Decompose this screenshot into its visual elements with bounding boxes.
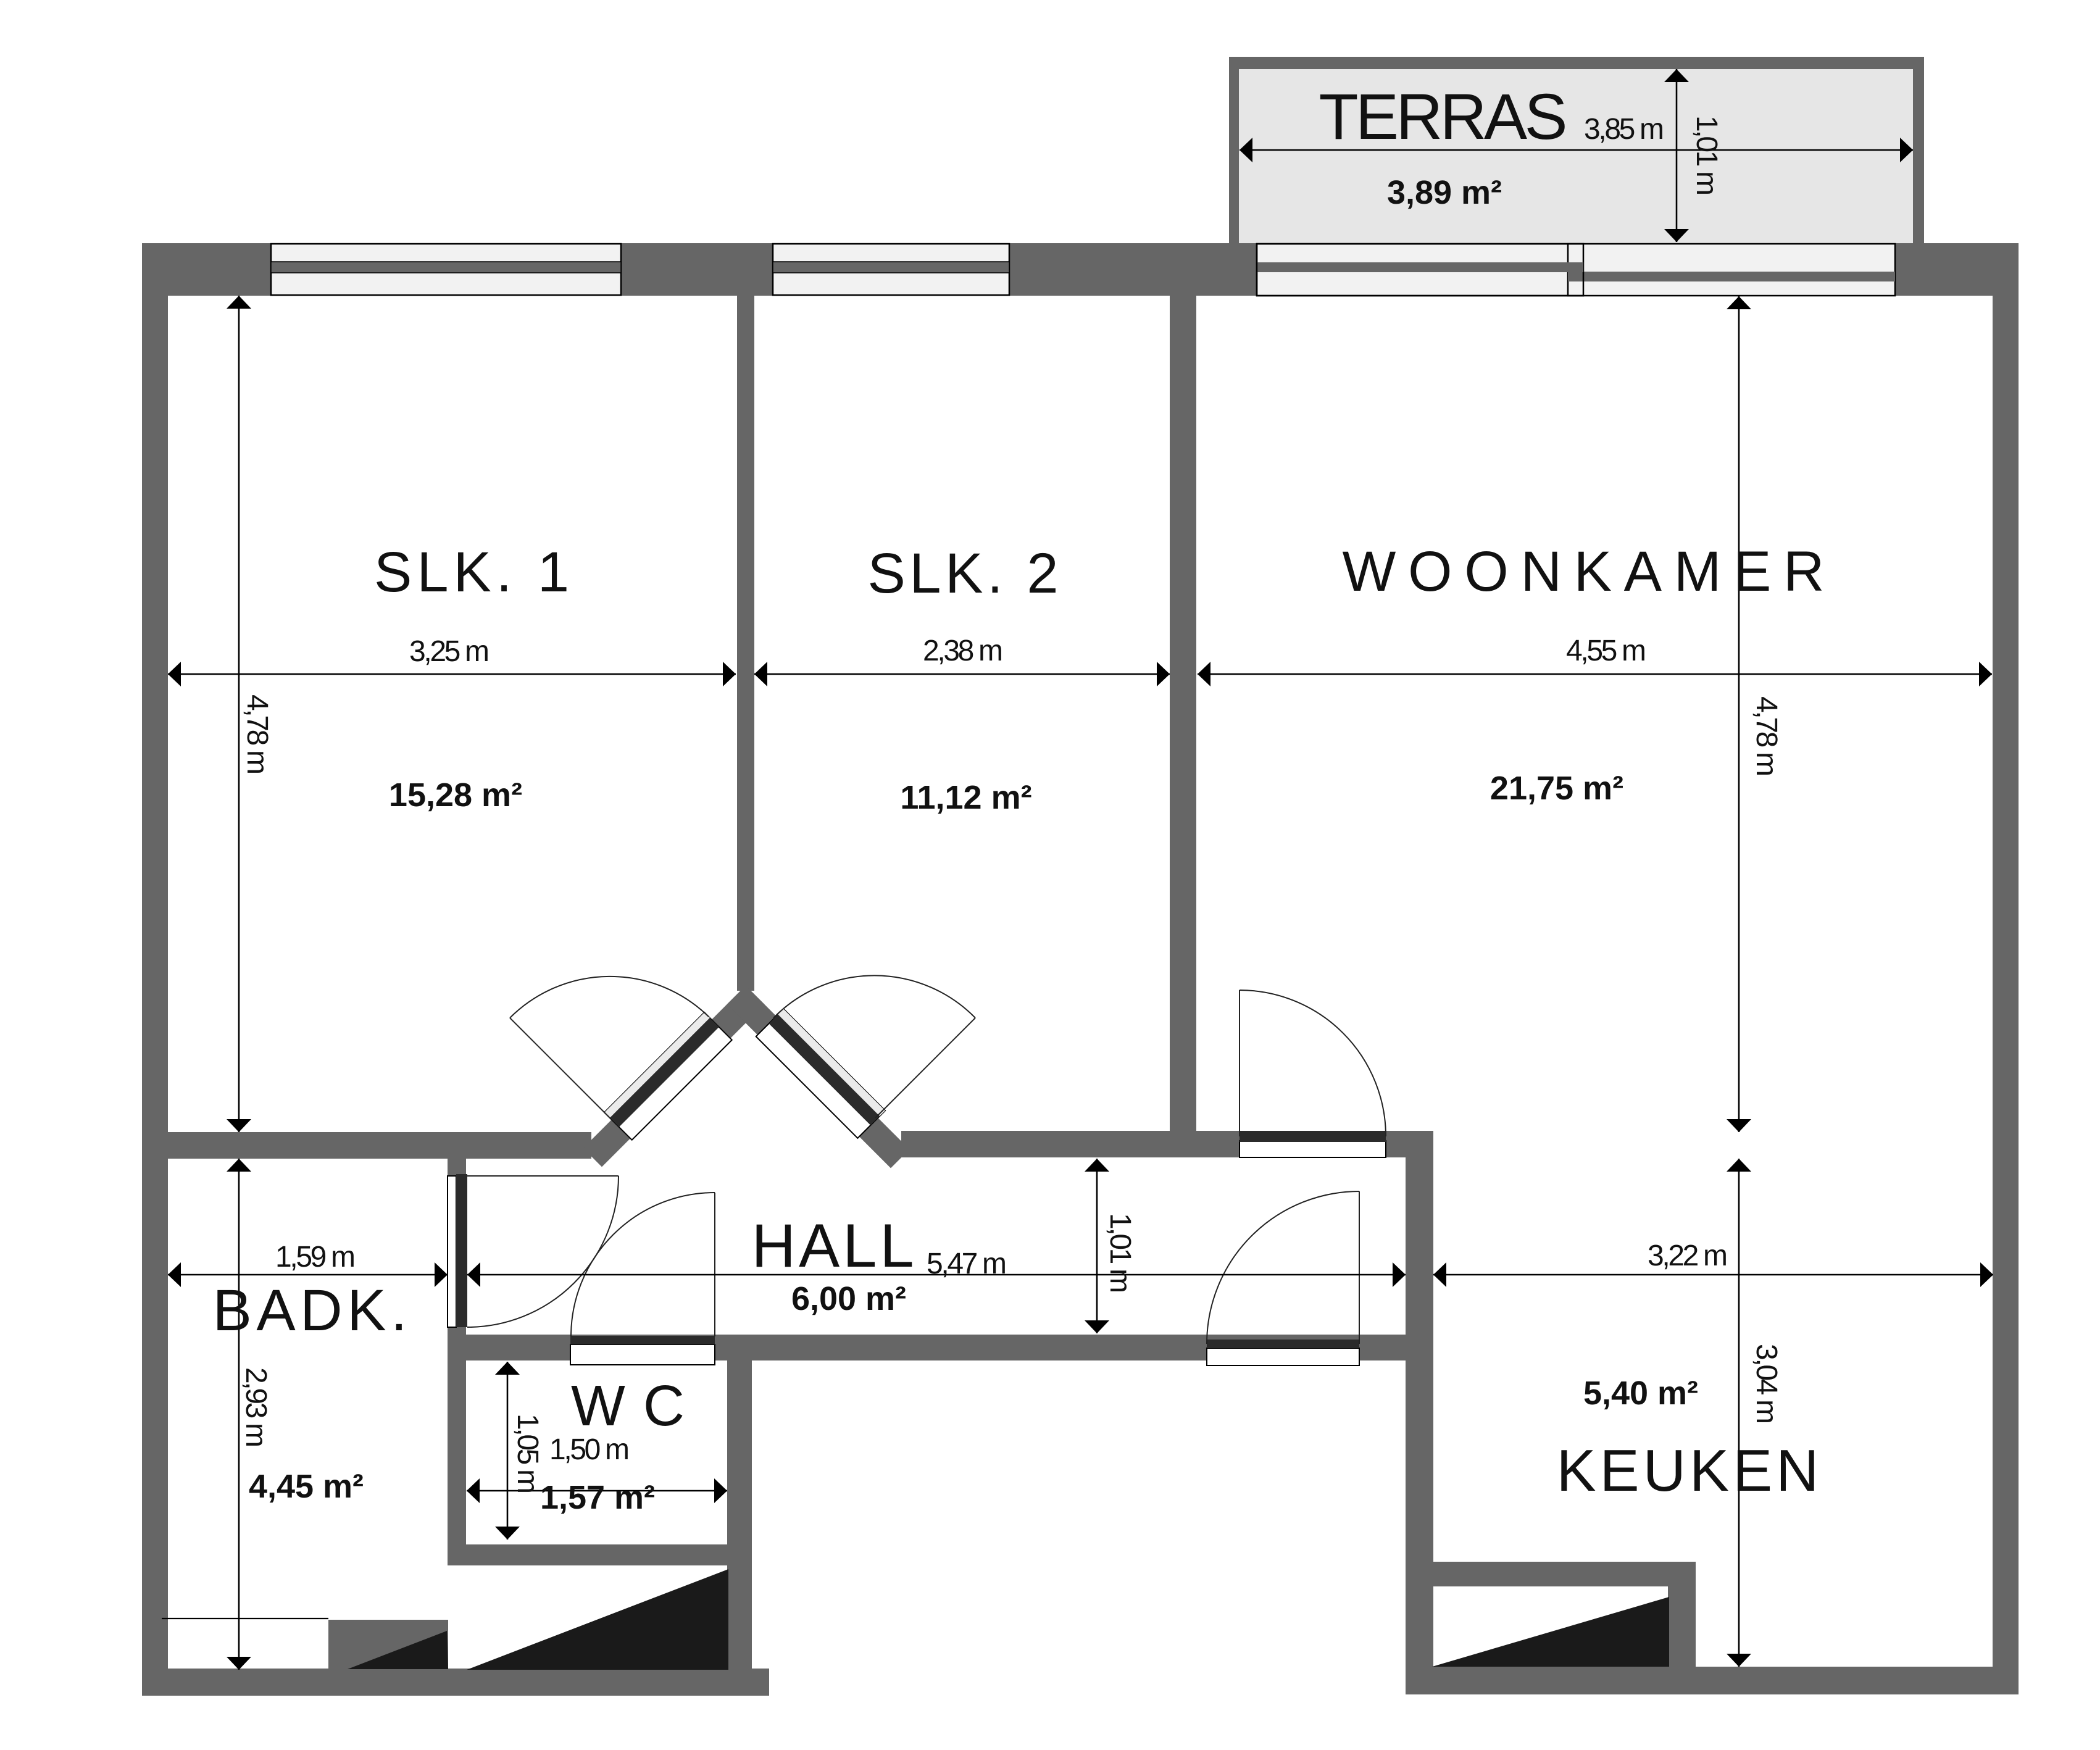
svg-text:3,89 m²: 3,89 m²	[1387, 174, 1502, 211]
svg-text:4,45 m²: 4,45 m²	[249, 1468, 364, 1505]
svg-text:1,01 m: 1,01 m	[1690, 115, 1723, 196]
svg-text:WOONKAMER: WOONKAMER	[1343, 540, 1825, 603]
svg-text:5,40 m²: 5,40 m²	[1583, 1375, 1698, 1412]
svg-text:1,57 m²: 1,57 m²	[540, 1479, 655, 1516]
svg-text:5,47 m: 5,47 m	[927, 1248, 1007, 1280]
svg-text:3,22 m: 3,22 m	[1648, 1240, 1728, 1272]
svg-text:3,25 m: 3,25 m	[409, 635, 490, 668]
svg-text:4,78 m: 4,78 m	[1750, 696, 1783, 777]
svg-text:1,50 m: 1,50 m	[549, 1433, 630, 1466]
svg-text:SLK. 2: SLK. 2	[868, 542, 1059, 605]
svg-text:3,85 m: 3,85 m	[1584, 113, 1664, 146]
svg-text:21,75 m²: 21,75 m²	[1490, 770, 1623, 807]
svg-text:2,38 m: 2,38 m	[923, 635, 1003, 667]
svg-text:1,01 m: 1,01 m	[1104, 1213, 1136, 1293]
svg-text:2,93 m: 2,93 m	[240, 1367, 272, 1448]
svg-text:BADK.: BADK.	[213, 1278, 407, 1343]
svg-text:SLK. 1: SLK. 1	[374, 541, 569, 604]
svg-text:4,55 m: 4,55 m	[1566, 635, 1646, 667]
svg-text:TERRAS: TERRAS	[1319, 81, 1568, 153]
svg-text:15,28 m²: 15,28 m²	[389, 777, 522, 814]
svg-text:6,00 m²: 6,00 m²	[791, 1280, 906, 1317]
svg-text:4,78 m: 4,78 m	[241, 694, 273, 775]
svg-text:HALL: HALL	[752, 1211, 914, 1280]
svg-text:3,04 m: 3,04 m	[1750, 1344, 1783, 1424]
svg-text:11,12 m²: 11,12 m²	[900, 779, 1031, 816]
svg-text:1,59 m: 1,59 m	[275, 1241, 356, 1273]
svg-text:1,05 m: 1,05 m	[511, 1414, 544, 1494]
